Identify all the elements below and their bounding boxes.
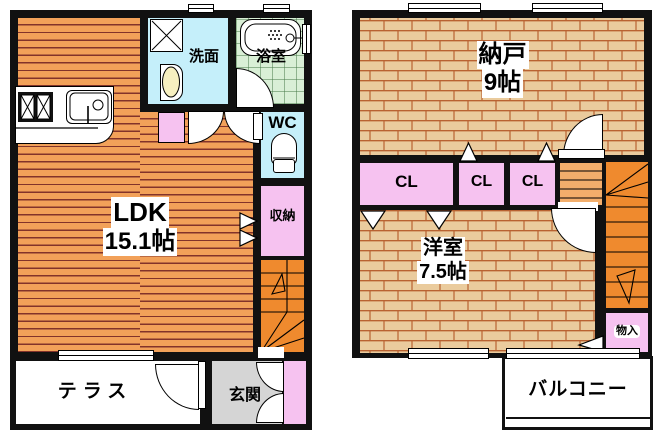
label-storage-small: 物入 <box>606 325 648 338</box>
storeroom-size: 9帖 <box>482 69 523 97</box>
stairs-floor1 <box>261 260 304 352</box>
storeroom-door-panel <box>558 149 605 159</box>
label-closet3: CL <box>510 173 555 192</box>
label-closet1: CL <box>360 172 453 192</box>
floorplan-canvas: LDK 15.1帖 洗面 浴室 WC 収納 テラス 玄関 納戸 9帖 CL CL… <box>0 0 663 444</box>
label-wc: WC <box>261 113 304 133</box>
label-closet-f1: 収納 <box>261 208 304 223</box>
ldk-size: 15.1帖 <box>103 228 178 256</box>
storeroom-name: 納戸 <box>477 41 529 69</box>
label-entrance: 玄関 <box>210 387 280 406</box>
label-washroom: 洗面 <box>166 48 242 66</box>
hall-closet <box>158 112 185 143</box>
stove <box>18 92 53 122</box>
label-bathroom: 浴室 <box>234 48 308 66</box>
window-western-bottom <box>408 348 489 359</box>
western-name: 洋室 <box>421 237 465 261</box>
ldk-entrance-opening <box>258 347 284 358</box>
western-size: 7.5帖 <box>417 261 469 285</box>
storage-small-name: 物入 <box>614 325 640 338</box>
window-bathroom-top <box>263 4 290 13</box>
window-storeroom-top-right <box>532 3 603 13</box>
room-ldk-main <box>18 18 140 352</box>
window-washroom-top <box>188 4 214 13</box>
kitchen-sink <box>66 90 112 124</box>
stairs-floor2 <box>606 162 648 308</box>
stairs-landing-f2 <box>560 163 602 205</box>
label-balcony: バルコニー <box>510 379 646 401</box>
slider-western-balcony <box>506 348 640 359</box>
window-storeroom-top-left <box>408 3 481 13</box>
shoe-closet <box>284 361 306 424</box>
label-storeroom: 納戸 9帖 <box>430 41 575 98</box>
label-closet2: CL <box>459 173 504 192</box>
slider-ldk-terrace <box>58 350 154 361</box>
toilet-tank <box>273 159 295 173</box>
ldk-name: LDK <box>111 197 168 228</box>
front-door-panel <box>198 361 206 409</box>
label-western: 洋室 7.5帖 <box>378 237 508 284</box>
wash-basin <box>160 64 183 101</box>
balcony-rail-line <box>506 417 650 419</box>
label-ldk: LDK 15.1帖 <box>70 197 210 256</box>
label-terrace: テラス <box>30 381 160 403</box>
